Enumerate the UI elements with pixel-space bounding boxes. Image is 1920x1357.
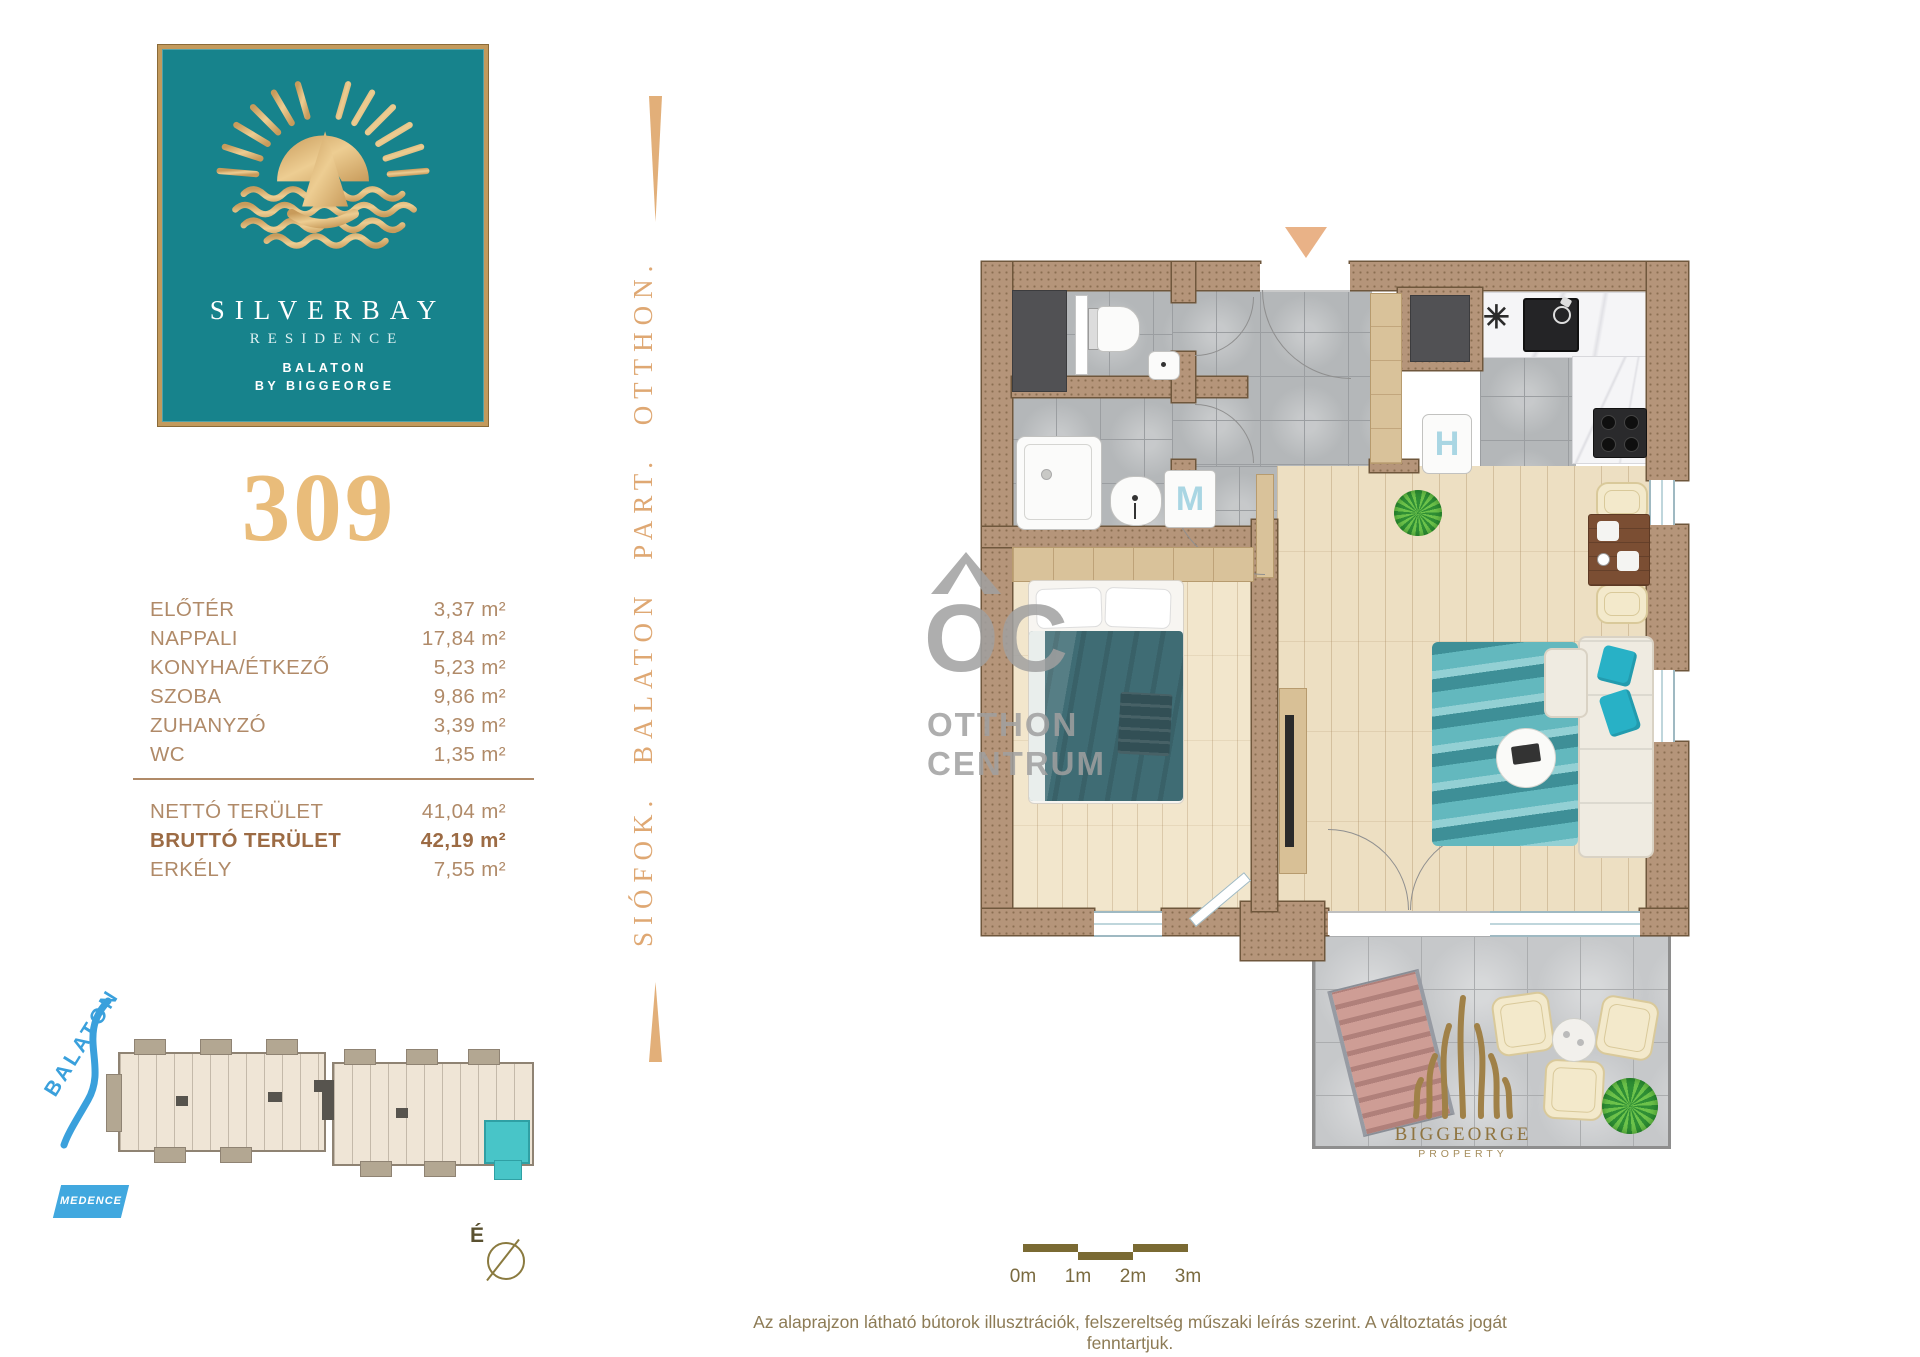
total-label: BRUTTÓ TERÜLET	[150, 829, 341, 853]
building-wing-right	[332, 1062, 530, 1162]
footer-brand-sub: PROPERTY	[1385, 1148, 1541, 1160]
wall-bottom-c	[1640, 909, 1688, 935]
dining-table	[1588, 514, 1650, 586]
entry-door-sill	[1260, 264, 1350, 292]
side-ornament-top	[649, 96, 662, 222]
bath-sink-icon	[1110, 476, 1162, 526]
cup	[1597, 553, 1610, 566]
total-area: 42,19 m²	[421, 829, 506, 853]
logo-subtitle: RESIDENCE	[162, 331, 484, 348]
sofa-chaise	[1544, 648, 1588, 718]
bath-shaft	[1012, 290, 1067, 392]
fridge-label: H	[1423, 415, 1471, 473]
balcony-door-sill	[1328, 911, 1490, 935]
living-window	[1490, 911, 1640, 937]
logo-line4: BY BIGGEORGE	[162, 379, 484, 393]
kitchen-cabinet-column	[1370, 293, 1402, 464]
scale-label: 0m	[1001, 1266, 1045, 1288]
folded-blanket	[1117, 692, 1172, 757]
plate	[1597, 521, 1619, 541]
washing-machine-icon: M	[1164, 470, 1216, 528]
logo-title: SILVERBAY	[162, 295, 484, 326]
wall-bedroom-living	[1252, 520, 1277, 911]
room-row: SZOBA 9,86 m²	[150, 685, 506, 714]
kitchen-sink-icon	[1523, 298, 1579, 352]
total-row-gross: BRUTTÓ TERÜLET 42,19 m²	[150, 829, 506, 858]
coffee-table	[1496, 728, 1556, 788]
room-label: ELŐTÉR	[150, 598, 234, 622]
silverbay-logo-box: SILVERBAY RESIDENCE BALATON BY BIGGEORGE	[158, 45, 488, 426]
room-area: 17,84 m²	[422, 627, 506, 651]
room-label: NAPPALI	[150, 627, 238, 651]
stove-icon	[1593, 408, 1647, 458]
wall-bath-hall-a	[1172, 262, 1195, 302]
building-wing-left	[118, 1052, 322, 1148]
highlighted-unit-balcony	[494, 1160, 522, 1180]
watermark-line1: OTTHON	[927, 706, 1078, 744]
vent-symbol: ✳	[1483, 298, 1517, 338]
room-row: KONYHA/ÉTKEZŐ 5,23 m²	[150, 656, 506, 685]
side-ornament-bottom	[649, 982, 662, 1062]
terrace-plant-icon	[1602, 1078, 1658, 1134]
compass-icon	[487, 1242, 525, 1280]
scale-label: 2m	[1111, 1266, 1155, 1288]
kitchen-floor	[1480, 352, 1576, 470]
room-row: ELŐTÉR 3,37 m²	[150, 598, 506, 627]
entrance-arrow-icon	[1285, 227, 1327, 258]
terrace-chair	[1542, 1058, 1605, 1121]
kitchen-shaft	[1410, 295, 1470, 362]
total-row: ERKÉLY 7,55 m²	[150, 858, 506, 887]
pool-badge: MEDENCE	[53, 1185, 129, 1218]
pool-label: MEDENCE	[57, 1185, 125, 1218]
side-tagline: SIÓFOK. BALATON PART. OTTHON.	[628, 232, 682, 974]
scale-segment	[1133, 1244, 1188, 1252]
room-row: WC 1,35 m²	[150, 743, 506, 772]
scale-label: 3m	[1166, 1266, 1210, 1288]
wardrobe	[1012, 547, 1254, 582]
room-area: 9,86 m²	[434, 685, 506, 709]
room-row: NAPPALI 17,84 m²	[150, 627, 506, 656]
compass-north-label: É	[470, 1224, 484, 1248]
room-label: SZOBA	[150, 685, 222, 709]
wall-bottom-a	[982, 909, 1094, 935]
fridge-icon: H	[1422, 414, 1472, 474]
footer-brand-name: BIGGEORGE	[1385, 1124, 1541, 1146]
scale-label: 1m	[1056, 1266, 1100, 1288]
room-label: WC	[150, 743, 185, 767]
otthon-centrum-monogram: OC	[924, 584, 1068, 694]
wc-door-leaf	[1075, 295, 1088, 375]
wall-top-left	[982, 262, 1260, 290]
shower-tray-icon	[1016, 436, 1102, 530]
wall-top-right	[1350, 262, 1688, 290]
room-area: 3,39 m²	[434, 714, 506, 738]
terrace-table	[1552, 1018, 1596, 1062]
logo-line3: BALATON	[162, 361, 484, 375]
washer-label: M	[1165, 471, 1215, 527]
plate	[1617, 551, 1639, 571]
room-area: 1,35 m²	[434, 743, 506, 767]
laptop-icon	[1511, 743, 1541, 765]
total-label: ERKÉLY	[150, 858, 232, 882]
watermark-line2: CENTRUM	[927, 745, 1106, 783]
wall-right-a	[1647, 262, 1688, 480]
totals-divider	[133, 778, 534, 780]
pillow	[1104, 587, 1171, 629]
toilet-icon	[1097, 306, 1140, 352]
room-label: KONYHA/ÉTKEZŐ	[150, 656, 329, 680]
wc-sink-icon	[1148, 351, 1180, 380]
scale-segment	[1078, 1252, 1133, 1260]
tv-icon	[1285, 715, 1294, 847]
plant-icon	[1394, 490, 1442, 536]
room-area: 3,37 m²	[434, 598, 506, 622]
room-row: ZUHANYZÓ 3,39 m²	[150, 714, 506, 743]
terrace-chair	[1593, 993, 1661, 1062]
unit-number: 309	[158, 452, 480, 563]
total-area: 7,55 m²	[434, 858, 506, 882]
tv-console	[1279, 688, 1307, 874]
room-label: ZUHANYZÓ	[150, 714, 266, 738]
biggeorge-logo-icon	[1408, 992, 1518, 1120]
sun-sailboat-icon	[208, 77, 438, 267]
scale-segment	[1023, 1244, 1078, 1252]
bedroom-window	[1094, 911, 1162, 937]
total-area: 41,04 m²	[422, 800, 506, 824]
brochure-page: SILVERBAY RESIDENCE BALATON BY BIGGEORGE…	[0, 0, 1920, 1357]
total-row: NETTÓ TERÜLET 41,04 m²	[150, 800, 506, 829]
total-label: NETTÓ TERÜLET	[150, 800, 323, 824]
dining-chair	[1596, 584, 1648, 624]
dining-window	[1649, 480, 1675, 525]
room-area: 5,23 m²	[434, 656, 506, 680]
disclaimer-text: Az alaprajzon látható bútorok illusztrác…	[740, 1312, 1520, 1354]
highlighted-unit	[484, 1120, 530, 1164]
